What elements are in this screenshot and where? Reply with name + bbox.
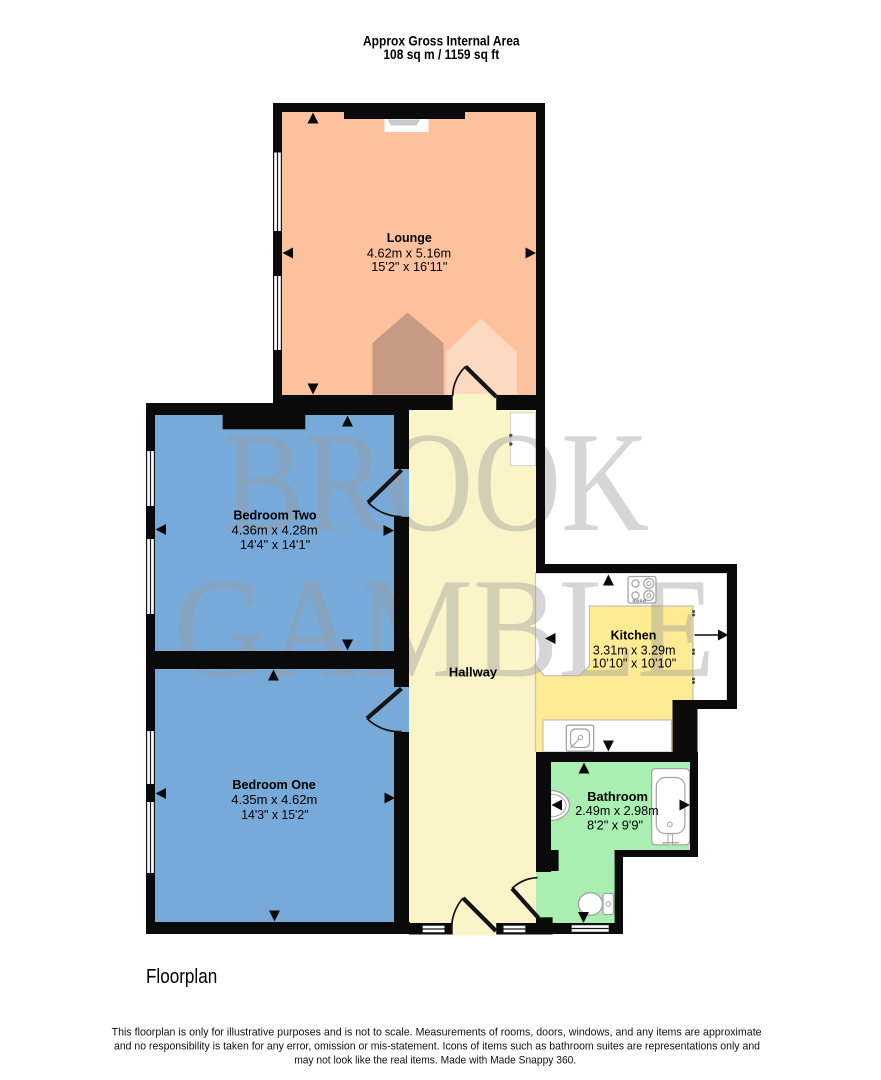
svg-text:This floorplan is only for ill: This floorplan is only for illustrative … [112, 1027, 762, 1039]
svg-text:Bedroom Two: Bedroom Two [233, 508, 316, 523]
svg-text:Bathroom: Bathroom [587, 789, 648, 804]
svg-text:Lounge: Lounge [387, 230, 432, 245]
svg-text:10'10" x 10'10": 10'10" x 10'10" [592, 656, 676, 671]
svg-text:Floorplan: Floorplan [146, 966, 217, 988]
svg-text:8'2" x 9'9": 8'2" x 9'9" [587, 817, 643, 832]
svg-text:may not look like the real ite: may not look like the real items. Made w… [294, 1055, 576, 1067]
svg-text:2.49m x 2.98m: 2.49m x 2.98m [575, 803, 658, 818]
svg-text:108 sq m / 1159 sq ft: 108 sq m / 1159 sq ft [383, 46, 499, 62]
svg-text:14'3" x 15'2": 14'3" x 15'2" [241, 807, 309, 822]
svg-text:Kitchen: Kitchen [611, 627, 657, 642]
svg-text:Bedroom One: Bedroom One [232, 777, 315, 792]
svg-text:14'4" x 14'1": 14'4" x 14'1" [240, 537, 311, 552]
svg-text:4.35m x 4.62m: 4.35m x 4.62m [231, 792, 317, 807]
svg-text:Hallway: Hallway [449, 665, 498, 680]
svg-text:15'2" x 16'11": 15'2" x 16'11" [371, 259, 448, 274]
svg-text:and no responsibility is taken: and no responsibility is taken for any e… [114, 1041, 760, 1053]
svg-text:4.36m x 4.28m: 4.36m x 4.28m [232, 523, 318, 538]
